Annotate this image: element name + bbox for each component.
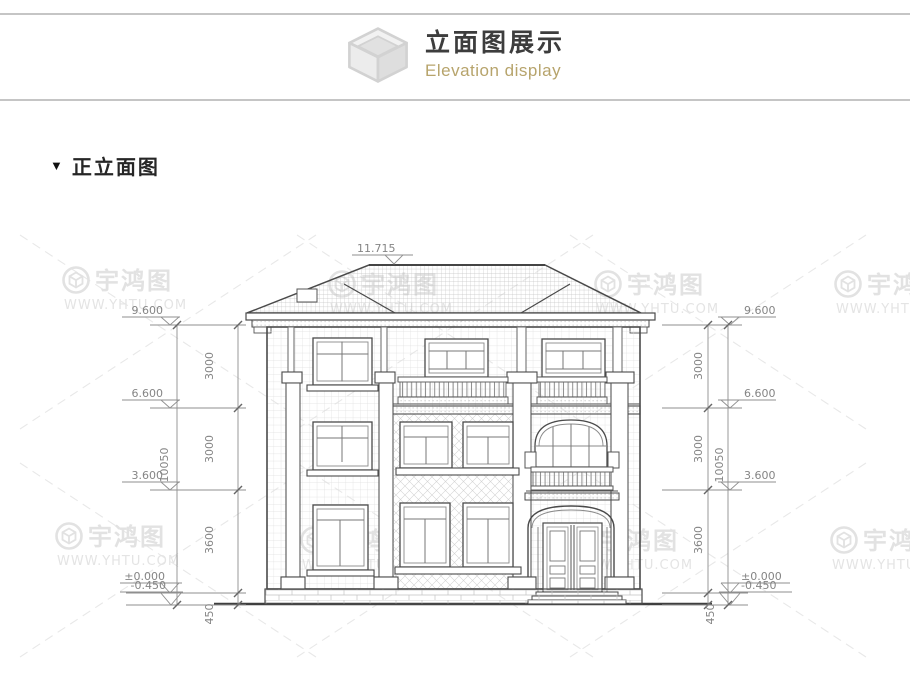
dim-seg-l4: 450 bbox=[203, 604, 216, 625]
dim-seg-r4: 450 bbox=[704, 604, 717, 625]
dim-overall-l: 10050 bbox=[158, 448, 171, 483]
plinth bbox=[265, 589, 642, 604]
dim-seg-r3: 3600 bbox=[692, 526, 705, 554]
dim-seg-l3: 3600 bbox=[203, 526, 216, 554]
eave-fascia bbox=[246, 313, 655, 320]
dim-seg-r2: 3000 bbox=[692, 435, 705, 463]
front-elevation-drawing: 宇鸿图 WWW.YHTU.COM bbox=[0, 0, 910, 692]
eave-soffit bbox=[252, 320, 649, 327]
second-floor-windows bbox=[307, 422, 519, 476]
dim-seg-l2: 3000 bbox=[203, 435, 216, 463]
dim-level-r2: 6.600 bbox=[744, 387, 776, 400]
dim-level-l5: -0.450 bbox=[131, 579, 166, 592]
dim-seg-l1: 3000 bbox=[203, 352, 216, 380]
dim-level-r1: 9.600 bbox=[744, 304, 776, 317]
elevation-page: 立面图展示 Elevation display ▼ 正立面图 bbox=[0, 0, 910, 692]
dim-ridge-level: 11.715 bbox=[357, 242, 396, 255]
dim-level-r5: -0.450 bbox=[741, 579, 776, 592]
dim-seg-r1: 3000 bbox=[692, 352, 705, 380]
dim-level-l2: 6.600 bbox=[132, 387, 164, 400]
ground-floor-windows bbox=[307, 503, 521, 576]
dim-level-l1: 9.600 bbox=[132, 304, 164, 317]
roof-chimney bbox=[297, 289, 317, 302]
dim-level-r3: 3.600 bbox=[744, 469, 776, 482]
dim-overall-r: 10050 bbox=[713, 448, 726, 483]
third-floor-balconies bbox=[398, 377, 607, 404]
hip-roof bbox=[246, 265, 655, 333]
